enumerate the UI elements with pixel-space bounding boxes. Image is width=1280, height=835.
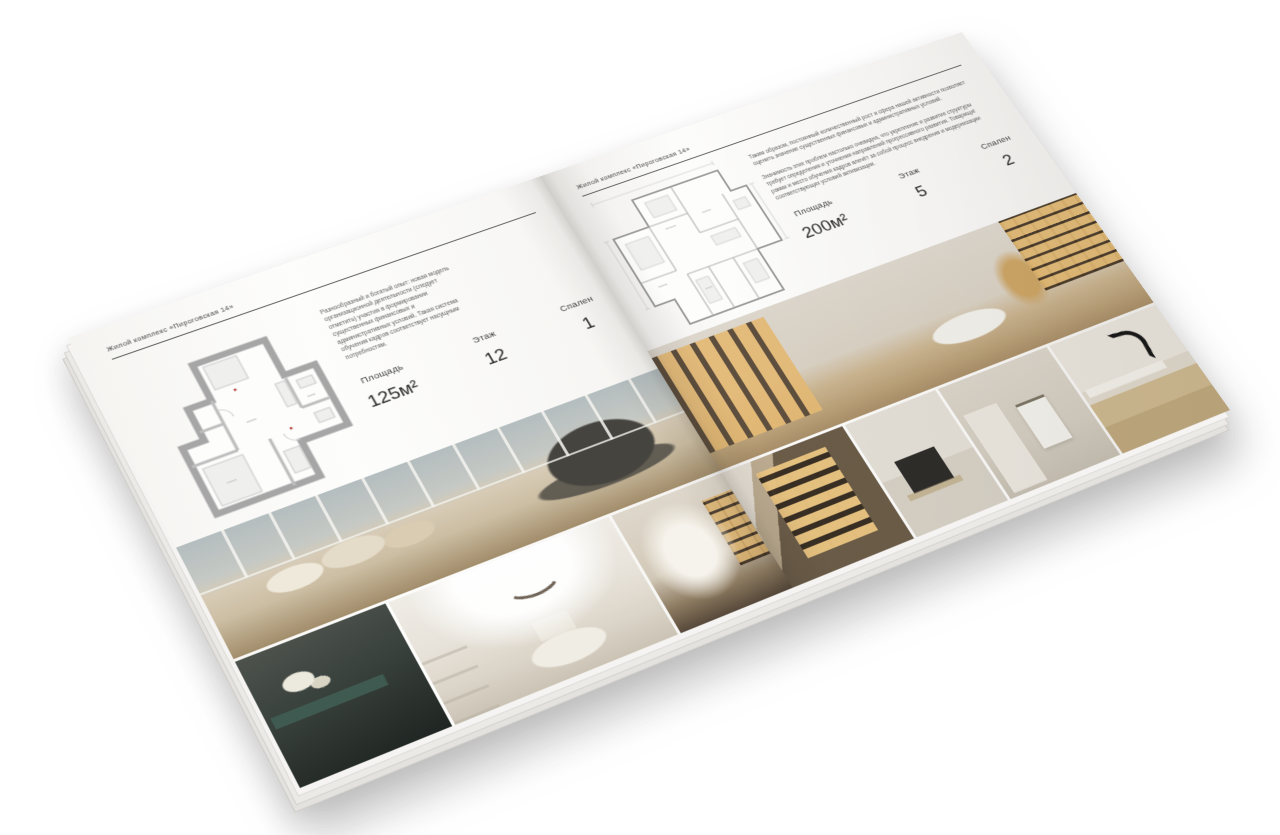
brochure-spread: Жилой комплекс «Пироговская 14» bbox=[68, 32, 1230, 788]
open-pages: Жилой комплекс «Пироговская 14» bbox=[68, 32, 1230, 788]
spec-label: Спален bbox=[558, 294, 595, 314]
spec-floor: Этаж 5 bbox=[897, 166, 938, 204]
spec-label: Этаж bbox=[471, 329, 498, 346]
spec-label: Спален bbox=[979, 134, 1013, 152]
spec-value: 200м² bbox=[799, 211, 853, 243]
spec-area: Площадь 125м² bbox=[355, 361, 423, 412]
spec-floor: Этаж 12 bbox=[471, 329, 513, 370]
spec-label: Этаж bbox=[897, 166, 922, 181]
spread-shadow-wrap: Жилой комплекс «Пироговская 14» bbox=[0, 0, 1280, 835]
spec-value: 2 bbox=[989, 148, 1029, 174]
spec-value: 1 bbox=[568, 310, 610, 339]
spec-bedrooms: Спален 1 bbox=[558, 294, 610, 338]
spec-area: Площадь 200м² bbox=[789, 196, 853, 243]
spec-value: 12 bbox=[480, 345, 513, 371]
spec-bedrooms: Спален 2 bbox=[979, 134, 1029, 174]
brochure-mockup-scene: Жилой комплекс «Пироговская 14» bbox=[0, 0, 1280, 835]
spec-value: 5 bbox=[906, 181, 937, 204]
